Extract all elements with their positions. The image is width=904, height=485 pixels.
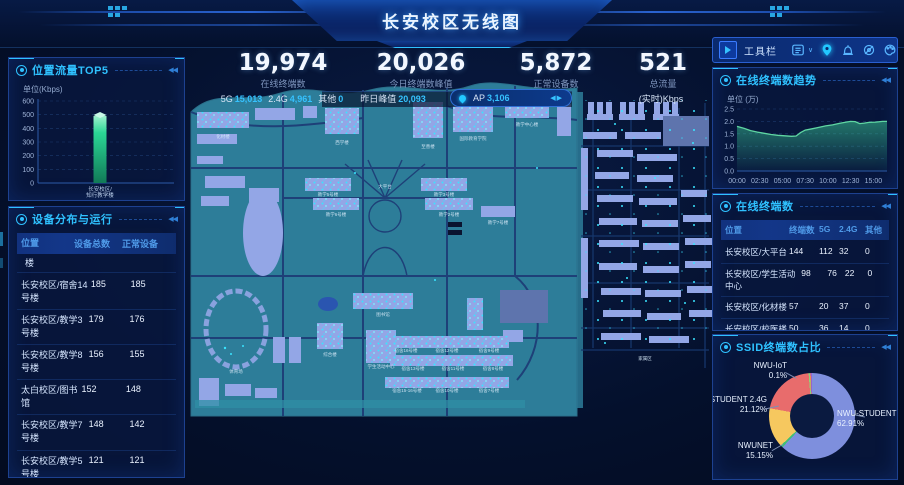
oval-lawn bbox=[243, 190, 283, 276]
table-row: 长安校区/学生活动中心9876220 bbox=[721, 264, 889, 298]
pin-icon bbox=[458, 93, 468, 103]
col-5g: 5G bbox=[819, 224, 839, 236]
alarm-icon[interactable] bbox=[841, 42, 855, 58]
svg-text:500: 500 bbox=[22, 112, 34, 119]
panel-device-distribution: 设备分布与运行 位置 设备总数 正常设备 楼 长安校区/宿舍14号楼185185… bbox=[8, 206, 185, 478]
table-header: 位置 设备总数 正常设备 bbox=[17, 233, 176, 254]
pond bbox=[318, 297, 338, 311]
donut-label-student: NWU-STUDENT62.91% bbox=[837, 409, 898, 429]
svg-text:宿舍8号楼: 宿舍8号楼 bbox=[483, 365, 504, 372]
table-row: 长安校区/教学8号楼156155 bbox=[17, 345, 176, 380]
svg-text:宿舍7号楼: 宿舍7号楼 bbox=[479, 387, 500, 394]
page-title: 长安校区无线图 bbox=[382, 8, 522, 33]
table-row: 长安校区/校医楼5036140 bbox=[721, 319, 889, 331]
collapse-icon[interactable] bbox=[881, 202, 890, 210]
panel-title: 在线终端数 bbox=[736, 198, 794, 214]
svg-text:00:00: 00:00 bbox=[728, 178, 746, 185]
campus-map-canvas[interactable]: 化材楼西学楼至善楼国际教育学院教学中心楼大平台教学5号楼教学6号楼教学3号楼教学… bbox=[185, 48, 712, 485]
stat-online-terminals: 19,974 在线终端数 bbox=[208, 50, 358, 90]
header-deco-dashes bbox=[108, 13, 120, 17]
svg-text:02:30: 02:30 bbox=[751, 178, 769, 185]
svg-text:西学楼: 西学楼 bbox=[335, 139, 349, 146]
divider bbox=[800, 206, 876, 207]
header-deco-dashes bbox=[770, 6, 789, 10]
divider bbox=[823, 80, 876, 81]
table-row: 长安校区/教学3号楼179176 bbox=[17, 310, 176, 345]
svg-text:1.0: 1.0 bbox=[724, 144, 734, 151]
location-pin-icon[interactable] bbox=[820, 42, 834, 58]
collapse-icon[interactable] bbox=[881, 76, 890, 84]
svg-text:0.5: 0.5 bbox=[724, 156, 734, 163]
collapse-icon[interactable] bbox=[881, 343, 890, 351]
panel-title: SSID终端数占比 bbox=[736, 339, 821, 355]
col-24g: 2.4G bbox=[839, 224, 865, 236]
list-filter-icon[interactable] bbox=[791, 42, 805, 58]
svg-text:教学3号楼: 教学3号楼 bbox=[434, 191, 455, 198]
header-deco-dashes bbox=[770, 13, 782, 17]
svg-text:图书馆: 图书馆 bbox=[376, 311, 390, 318]
panel-bullet-icon bbox=[720, 75, 731, 86]
svg-text:至善楼: 至善楼 bbox=[421, 143, 435, 150]
svg-text:教学5号楼: 教学5号楼 bbox=[318, 191, 339, 198]
col-other: 其他 bbox=[865, 224, 885, 236]
stat-value: 5,872 bbox=[491, 50, 621, 76]
svg-text:化材楼: 化材楼 bbox=[216, 133, 230, 140]
svg-text:大平台: 大平台 bbox=[378, 183, 392, 190]
svg-text:长安校区/知行教学楼: 长安校区/知行教学楼 bbox=[86, 185, 114, 199]
ssid-donut-chart: NWU-IoT0.1% NWU-STUDENT 2.4G21.12% NWUNE… bbox=[713, 359, 897, 475]
chart-unit: 单位 (万) bbox=[713, 92, 897, 105]
eye-off-icon[interactable] bbox=[862, 42, 876, 58]
device-table-body: 长安校区/宿舍14号楼185185长安校区/教学3号楼179176长安校区/教学… bbox=[17, 275, 176, 478]
col-normal: 正常设备 bbox=[122, 237, 172, 250]
svg-text:15:00: 15:00 bbox=[865, 178, 883, 185]
svg-text:国际教育学院: 国际教育学院 bbox=[460, 135, 487, 142]
expand-arrow-icon[interactable] bbox=[719, 41, 737, 59]
collapse-icon[interactable] bbox=[168, 215, 177, 223]
panel-title: 位置流量TOP5 bbox=[32, 62, 109, 78]
stat-value: 19,974 bbox=[208, 50, 358, 76]
col-location: 位置 bbox=[725, 224, 789, 236]
trend-area-chart: 0.00.51.01.52.02.500:0002:3005:0007:3010… bbox=[715, 105, 895, 189]
svg-text:600: 600 bbox=[22, 99, 34, 106]
svg-text:100: 100 bbox=[22, 167, 34, 174]
svg-text:体育场: 体育场 bbox=[229, 368, 243, 375]
svg-text:教学中心楼: 教学中心楼 bbox=[516, 121, 539, 128]
panel-bullet-icon bbox=[16, 65, 27, 76]
svg-text:300: 300 bbox=[22, 140, 34, 147]
table-row: 长安校区/教学7号楼148142 bbox=[17, 415, 176, 450]
svg-text:教学2号楼: 教学2号楼 bbox=[439, 211, 460, 218]
panel-ssid-share: SSID终端数占比 NWU-IoT0.1% NWU-STUDENT 2.4G21… bbox=[712, 334, 898, 480]
collapse-icon[interactable] bbox=[168, 66, 177, 74]
title-plate-tab bbox=[377, 41, 527, 48]
ap-count-toggle[interactable]: AP3,106 bbox=[450, 89, 572, 107]
col-location: 位置 bbox=[21, 237, 74, 250]
panel-online-trend: 在线终端数趋势 单位 (万) 0.00.51.01.52.02.500:0002… bbox=[712, 67, 898, 189]
svg-text:教学7号楼: 教学7号楼 bbox=[488, 219, 509, 226]
panel-bullet-icon bbox=[720, 201, 731, 212]
donut-label-nwunet: NWUNET15.15% bbox=[721, 441, 773, 461]
substat-yesterday-peak: 昨日峰值20,093 bbox=[334, 92, 454, 105]
svg-text:2.5: 2.5 bbox=[724, 107, 734, 114]
donut-label-student24g: NWU-STUDENT 2.4G21.12% bbox=[712, 395, 767, 415]
table-row: 长安校区/化材楼5720370 bbox=[721, 297, 889, 318]
substat-realtime-unit: (实时)Kbps bbox=[613, 92, 713, 105]
svg-text:学生活动中心: 学生活动中心 bbox=[368, 363, 395, 370]
svg-text:宿舍10号楼: 宿舍10号楼 bbox=[435, 387, 459, 394]
flat-building bbox=[500, 290, 548, 323]
divider bbox=[119, 219, 163, 220]
toggle-arrows-icon[interactable] bbox=[550, 94, 563, 102]
stat-value: 20,026 bbox=[351, 50, 491, 76]
svg-text:宿舍16号楼: 宿舍16号楼 bbox=[394, 347, 418, 354]
svg-text:家属区: 家属区 bbox=[638, 355, 652, 362]
terminals-table-body: 长安校区/大平台144112320长安校区/学生活动中心9876220长安校区/… bbox=[721, 242, 889, 331]
table-row: 长安校区/宿舍14号楼185185 bbox=[17, 275, 176, 310]
svg-text:10:00: 10:00 bbox=[819, 178, 837, 185]
stat-value: 521 bbox=[613, 50, 713, 76]
svg-text:1.5: 1.5 bbox=[724, 131, 734, 138]
donut-label-iot: NWU-IoT0.1% bbox=[729, 361, 787, 381]
stat-label: 在线终端数 bbox=[208, 77, 358, 90]
substat-ap-count: AP3,106 bbox=[471, 93, 514, 103]
table-row-partial: 楼 bbox=[17, 254, 176, 273]
chevron-down-icon[interactable] bbox=[808, 46, 813, 54]
svg-text:07:30: 07:30 bbox=[796, 178, 814, 185]
stat-label: 总流量 bbox=[613, 77, 713, 90]
svg-text:200: 200 bbox=[22, 153, 34, 160]
svg-text:宿舍9号楼: 宿舍9号楼 bbox=[479, 347, 500, 354]
divider bbox=[115, 70, 163, 71]
table-header: 位置 终端数 5G 2.4G 其他 bbox=[721, 220, 889, 240]
svg-text:400: 400 bbox=[22, 126, 34, 133]
toolbar-label: 工具栏 bbox=[744, 43, 777, 58]
svg-text:05:00: 05:00 bbox=[774, 178, 792, 185]
divider bbox=[827, 347, 875, 348]
panel-location-traffic-top5: 位置流量TOP5 单位(Kbps) 0100200300400500600长安校… bbox=[8, 57, 185, 201]
palette-icon[interactable] bbox=[883, 42, 897, 58]
col-terminal-count: 终端数 bbox=[789, 224, 819, 236]
table-row: 长安校区/大平台144112320 bbox=[721, 242, 889, 263]
panel-title: 在线终端数趋势 bbox=[736, 72, 817, 88]
panel-bullet-icon bbox=[720, 342, 731, 353]
title-plate: 长安校区无线图 bbox=[292, 0, 612, 41]
panel-bullet-icon bbox=[16, 214, 27, 225]
stat-today-peak: 20,026 今日终端数峰值 bbox=[351, 50, 491, 90]
stat-normal-devices: 5,872 正常设备数 bbox=[491, 50, 621, 90]
svg-text:宿舍12号楼: 宿舍12号楼 bbox=[435, 347, 459, 354]
svg-text:教学6号楼: 教学6号楼 bbox=[326, 211, 347, 218]
chart-unit: 单位(Kbps) bbox=[9, 82, 184, 95]
svg-text:宿舍11号楼: 宿舍11号楼 bbox=[442, 365, 465, 372]
svg-text:12:30: 12:30 bbox=[842, 178, 860, 185]
edge-deco bbox=[0, 232, 3, 246]
svg-text:0: 0 bbox=[30, 181, 34, 188]
table-row: 太白校区/图书馆152148 bbox=[17, 380, 176, 415]
donut-leader-line bbox=[772, 444, 784, 451]
panel-online-terminals: 在线终端数 位置 终端数 5G 2.4G 其他 长安校区/大平台14411232… bbox=[712, 193, 898, 331]
svg-text:宿舍15-16号楼: 宿舍15-16号楼 bbox=[392, 387, 422, 394]
panel-title: 设备分布与运行 bbox=[32, 211, 113, 227]
header-deco-dashes bbox=[108, 6, 127, 10]
svg-text:0.0: 0.0 bbox=[724, 169, 734, 176]
map-toolbar: 工具栏 bbox=[712, 37, 898, 63]
sparse-dot-overlay bbox=[579, 100, 711, 345]
svg-text:宿舍13号楼: 宿舍13号楼 bbox=[401, 365, 425, 372]
svg-text:综合楼: 综合楼 bbox=[323, 351, 337, 358]
edge-deco bbox=[0, 258, 3, 268]
svg-text:2.0: 2.0 bbox=[724, 119, 734, 126]
table-row: 长安校区/教学5号楼121121 bbox=[17, 451, 176, 478]
top5-bar-chart: 0100200300400500600长安校区/知行教学楼 bbox=[12, 95, 182, 201]
south-road-band bbox=[195, 400, 525, 408]
stat-total-traffic: 521 总流量 bbox=[613, 50, 713, 90]
col-total: 设备总数 bbox=[74, 237, 122, 250]
